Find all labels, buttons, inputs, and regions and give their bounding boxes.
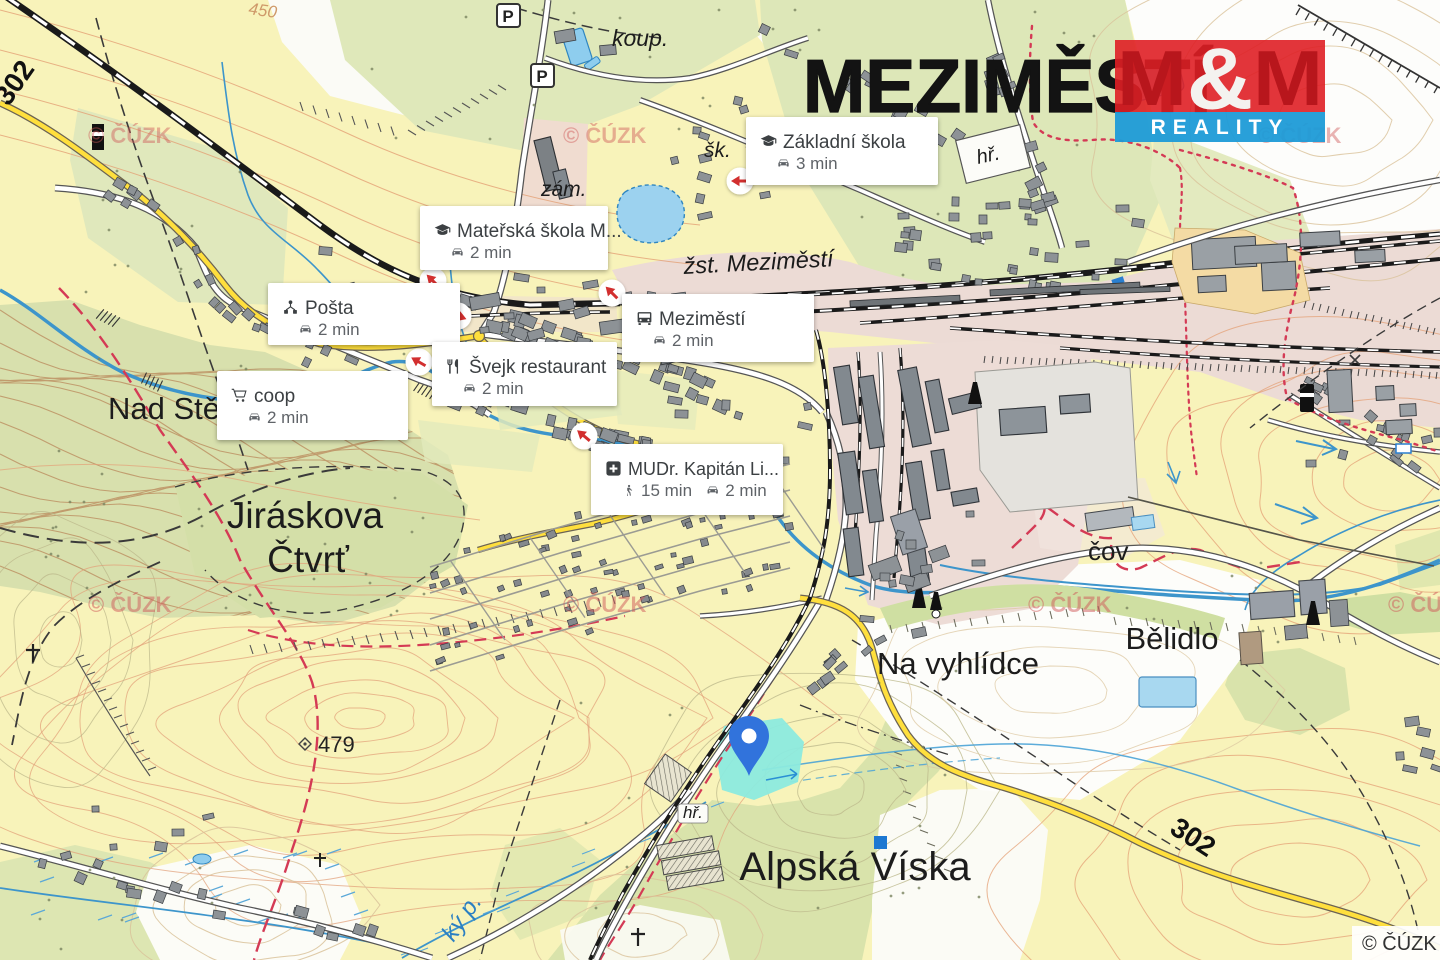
svg-text:Základní škola: Základní škola [783, 132, 906, 153]
svg-text:Mateřská škola M...: Mateřská škola M... [457, 221, 622, 242]
svg-text:© ČÚZK: © ČÚZK [88, 592, 172, 617]
svg-text:© ČÚZK: © ČÚZK [563, 592, 647, 617]
svg-text:© ČÚZK: © ČÚZK [88, 123, 172, 148]
svg-text:MUDr. Kapitán Li...: MUDr. Kapitán Li... [628, 459, 779, 479]
svg-text:REALITY: REALITY [1151, 116, 1290, 139]
svg-text:koup.: koup. [612, 25, 668, 51]
svg-text:čov: čov [1088, 536, 1128, 566]
svg-text:2 min: 2 min [267, 408, 309, 427]
svg-text:2 min: 2 min [482, 379, 524, 398]
svg-text:P: P [536, 67, 547, 86]
svg-text:2 min: 2 min [318, 320, 360, 339]
svg-text:Na vyhlídce: Na vyhlídce [877, 646, 1039, 681]
svg-text:Bělidlo: Bělidlo [1125, 621, 1218, 656]
svg-text:2 min: 2 min [470, 243, 512, 262]
svg-text:3 min: 3 min [796, 154, 838, 173]
svg-text:zám.: zám. [540, 178, 587, 201]
svg-text:© ČÚZK: © ČÚZK [563, 123, 647, 148]
svg-text:© ČÚZK: © ČÚZK [1362, 932, 1437, 955]
svg-text:2 min: 2 min [672, 331, 714, 350]
svg-text:hř.: hř. [683, 803, 703, 822]
svg-text:M: M [1117, 36, 1187, 123]
svg-text:coop: coop [254, 386, 295, 407]
svg-text:2 min: 2 min [725, 481, 767, 500]
svg-text:Švejk restaurant: Švejk restaurant [469, 356, 607, 378]
svg-text:479: 479 [318, 732, 355, 757]
svg-text:M: M [1253, 36, 1323, 123]
svg-text:Jiráskova: Jiráskova [227, 495, 384, 536]
svg-text:Meziměstí: Meziměstí [659, 309, 746, 330]
svg-text:© ČÚZK: © ČÚZK [1028, 592, 1112, 617]
svg-text:Pošta: Pošta [305, 298, 354, 319]
svg-text:15 min: 15 min [641, 481, 692, 500]
svg-text:© ČÚZK: © ČÚZK [1388, 592, 1440, 617]
svg-text:Čtvrť: Čtvrť [267, 539, 350, 580]
svg-text:Alpská Víska: Alpská Víska [739, 845, 971, 889]
svg-text:šk.: šk. [704, 139, 731, 162]
svg-text:P: P [502, 7, 513, 26]
